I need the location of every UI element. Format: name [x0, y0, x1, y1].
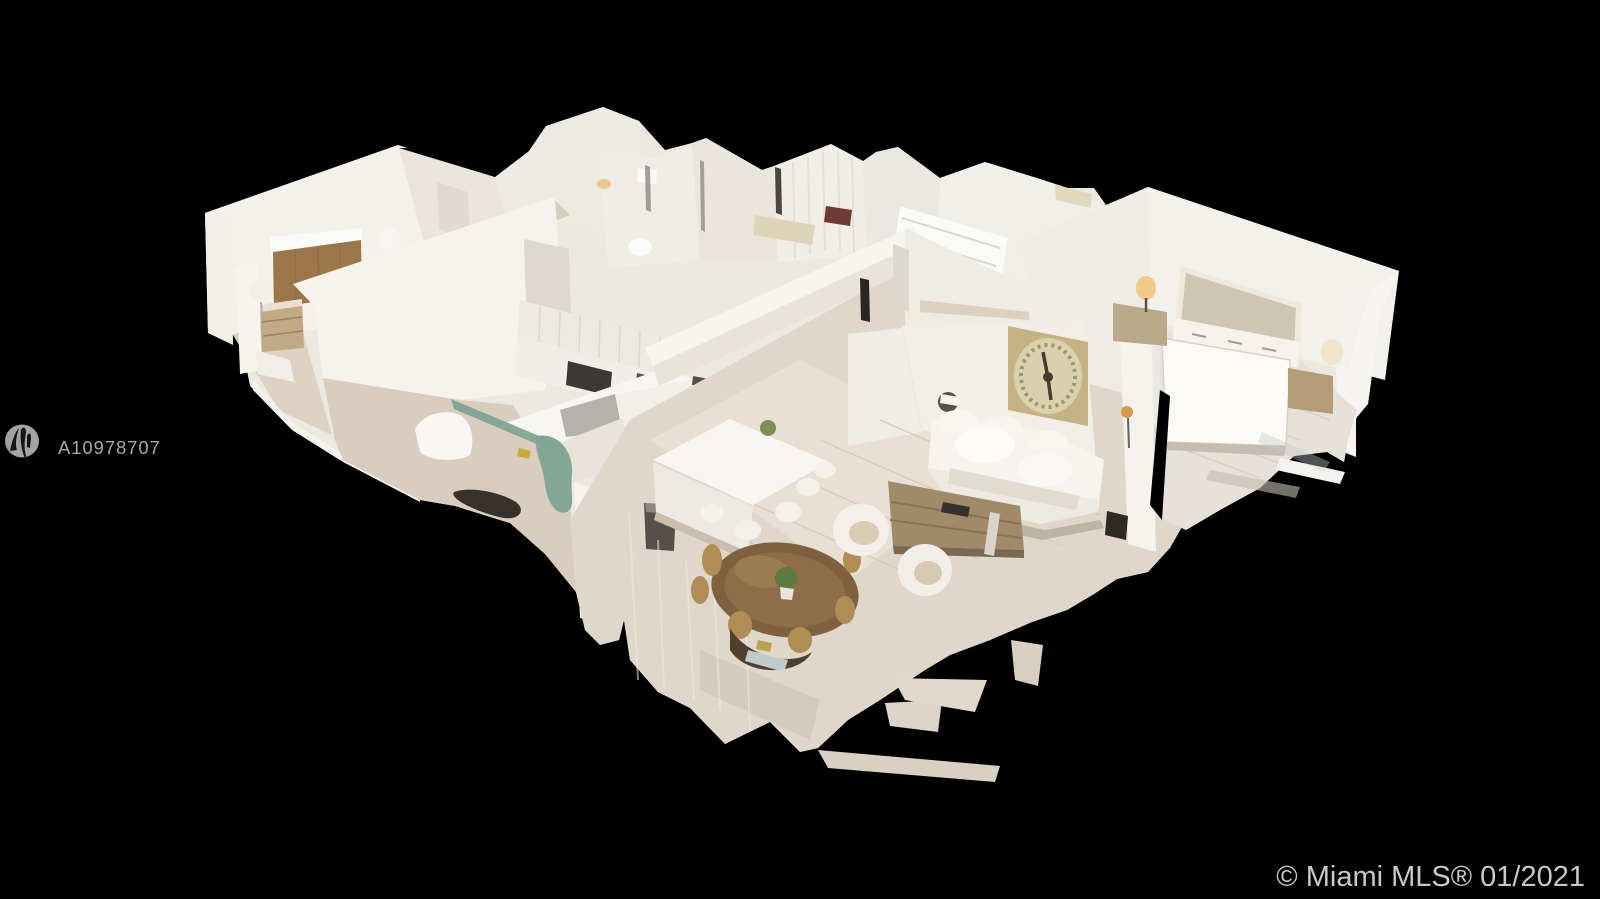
svg-text:© Miami MLS® 01/2021: © Miami MLS® 01/2021	[1276, 861, 1585, 893]
svg-text:A10978707: A10978707	[58, 437, 161, 458]
